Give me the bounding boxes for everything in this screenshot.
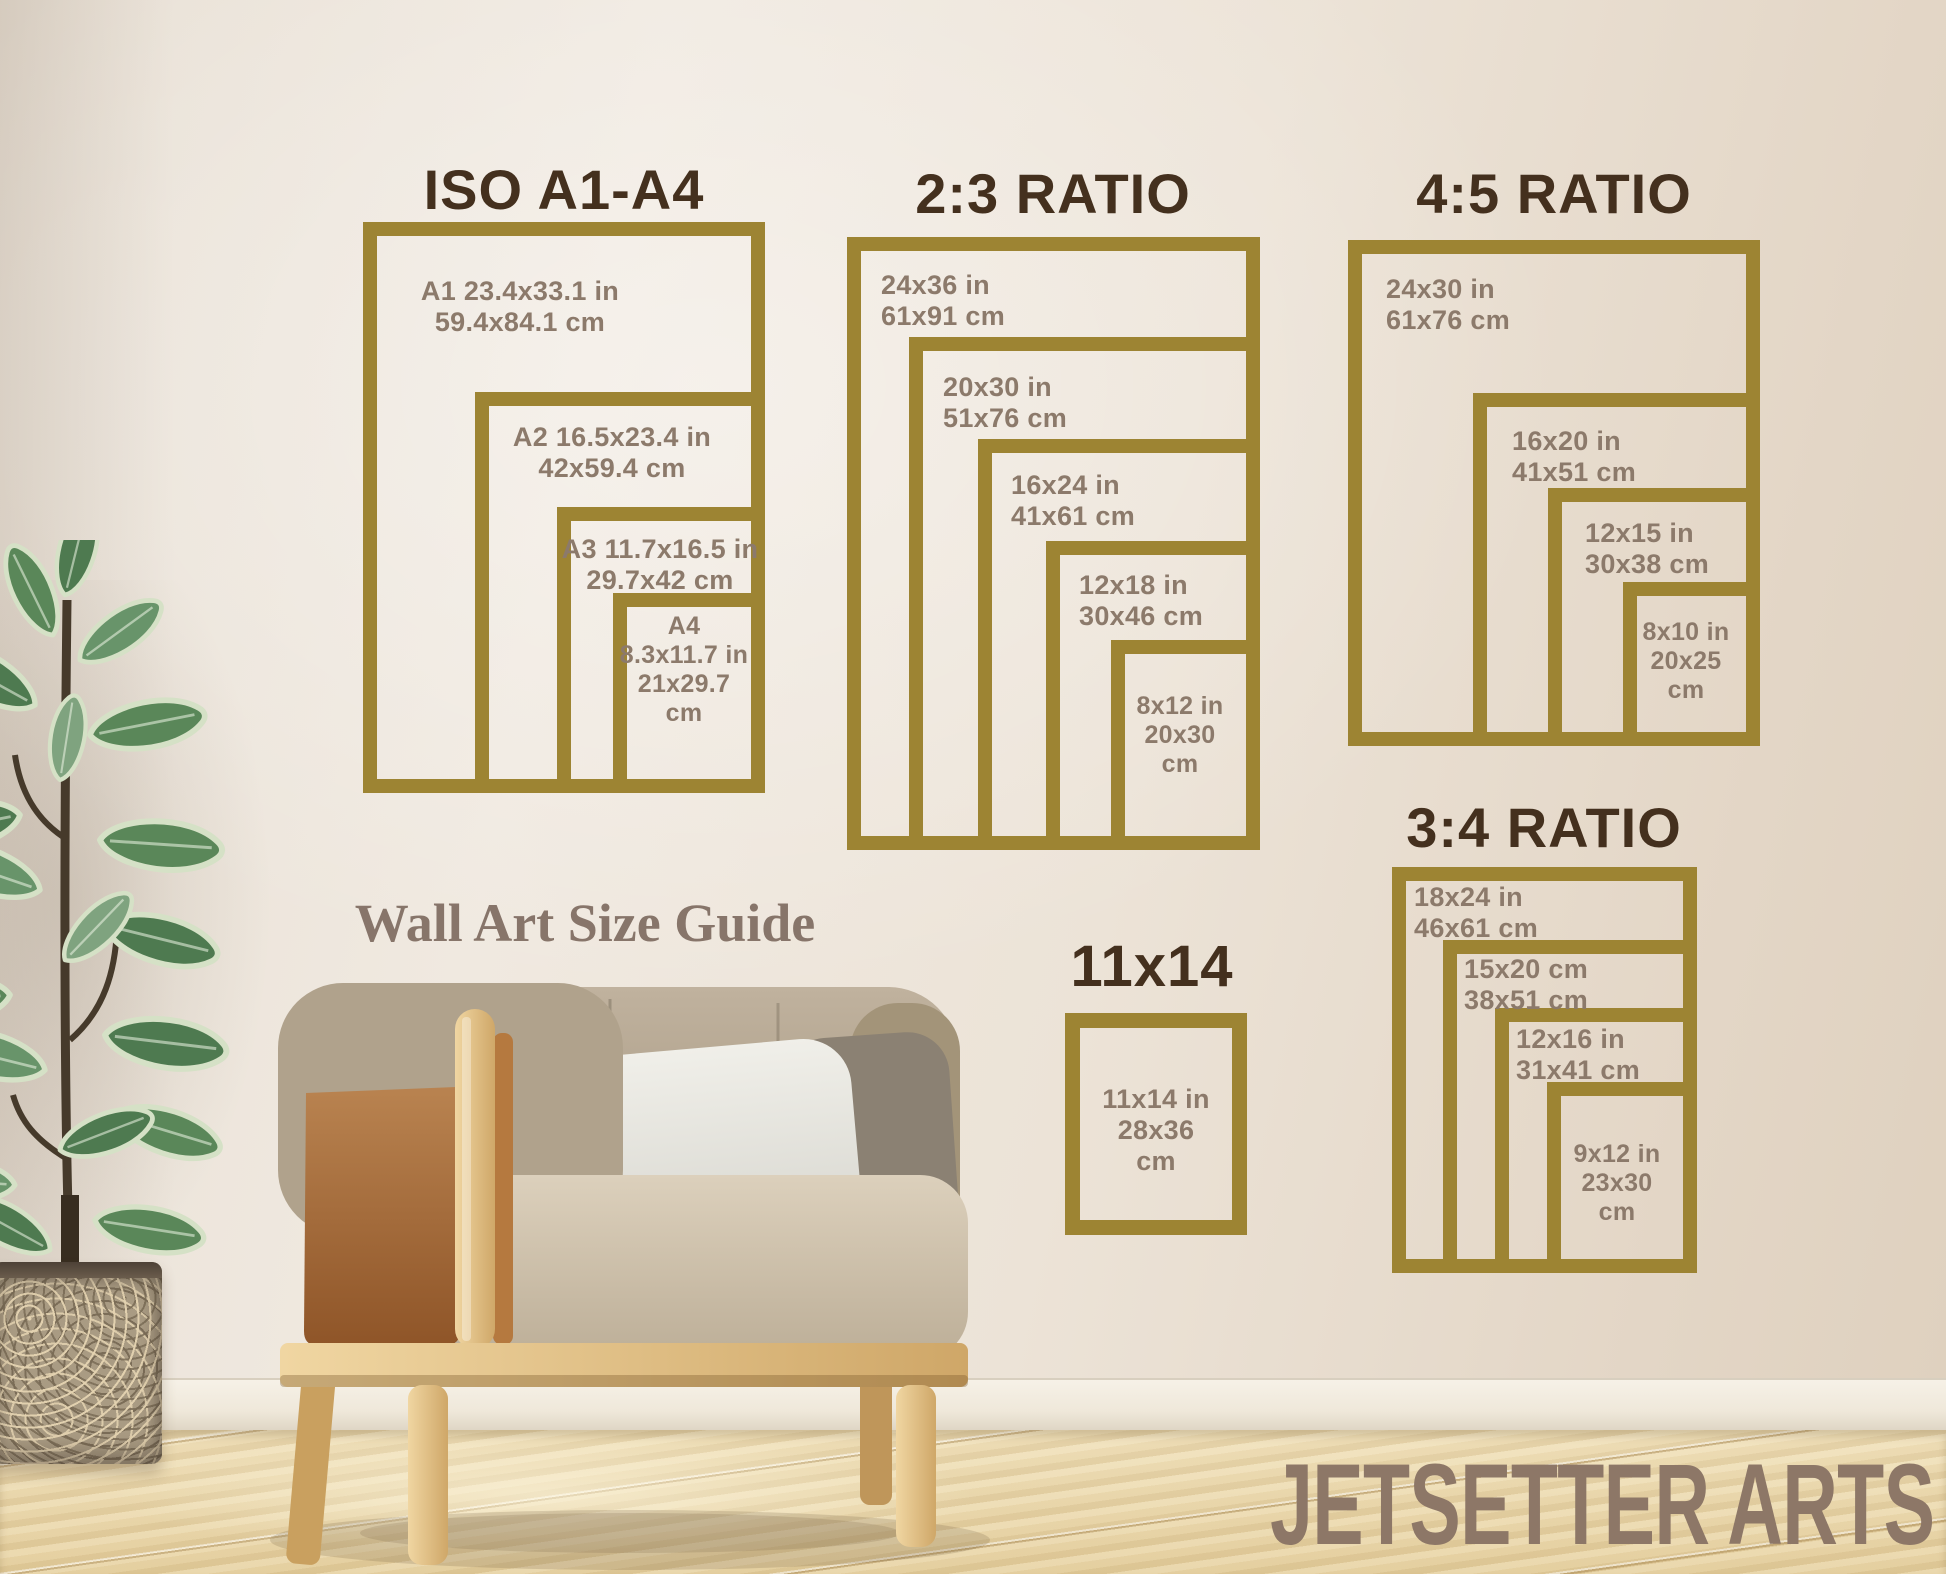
wall-art-size-guide-text: Wall Art Size Guide <box>355 896 816 950</box>
size-label-12x16: 12x16 in 31x41 cm <box>1516 1024 1640 1086</box>
size-label-11x14: 11x14 in 28x36 cm <box>1102 1084 1210 1177</box>
section-title: 11x14 <box>1070 938 1233 996</box>
size-label-16x24: 16x24 in 41x61 cm <box>1011 470 1135 532</box>
size-label-16x20: 16x20 in 41x51 cm <box>1512 426 1636 488</box>
section-title: 3:4 RATIO <box>1406 800 1682 856</box>
size-label-18x24: 18x24 in 46x61 cm <box>1414 882 1538 944</box>
basket-rim <box>0 1262 162 1278</box>
section-title: 2:3 RATIO <box>915 166 1191 222</box>
size-label-a4: A4 8.3x11.7 in 21x29.7 cm <box>620 612 748 728</box>
size-label-8x10: 8x10 in 20x25 cm <box>1643 618 1730 705</box>
size-label-a1: A1 23.4x33.1 in 59.4x84.1 cm <box>421 276 619 338</box>
size-label-24x36: 24x36 in 61x91 cm <box>881 270 1005 332</box>
size-label-24x30: 24x30 in 61x76 cm <box>1386 274 1510 336</box>
section-title: ISO A1-A4 <box>424 162 705 218</box>
size-label-9x12: 9x12 in 23x30 cm <box>1574 1140 1661 1227</box>
size-label-12x18: 12x18 in 30x46 cm <box>1079 570 1203 632</box>
size-label-a3: A3 11.7x16.5 in 29.7x42 cm <box>562 534 759 596</box>
size-label-15x20: 15x20 cm 38x51 cm <box>1464 954 1588 1016</box>
size-label-12x15: 12x15 in 30x38 cm <box>1585 518 1709 580</box>
size-label-20x30: 20x30 in 51x76 cm <box>943 372 1067 434</box>
section-title: 4:5 RATIO <box>1416 166 1692 222</box>
woven-planter-basket <box>0 1262 162 1464</box>
size-label-a2: A2 16.5x23.4 in 42x59.4 cm <box>513 422 711 484</box>
size-label-8x12: 8x12 in 20x30 cm <box>1137 692 1224 779</box>
armchair <box>250 975 990 1574</box>
room-scene: ISO A1-A4 A1 23.4x33.1 in 59.4x84.1 cm A… <box>0 0 1946 1574</box>
brand-watermark: JETSETTER ARTS <box>1270 1448 1934 1563</box>
potted-plant <box>0 540 245 1280</box>
